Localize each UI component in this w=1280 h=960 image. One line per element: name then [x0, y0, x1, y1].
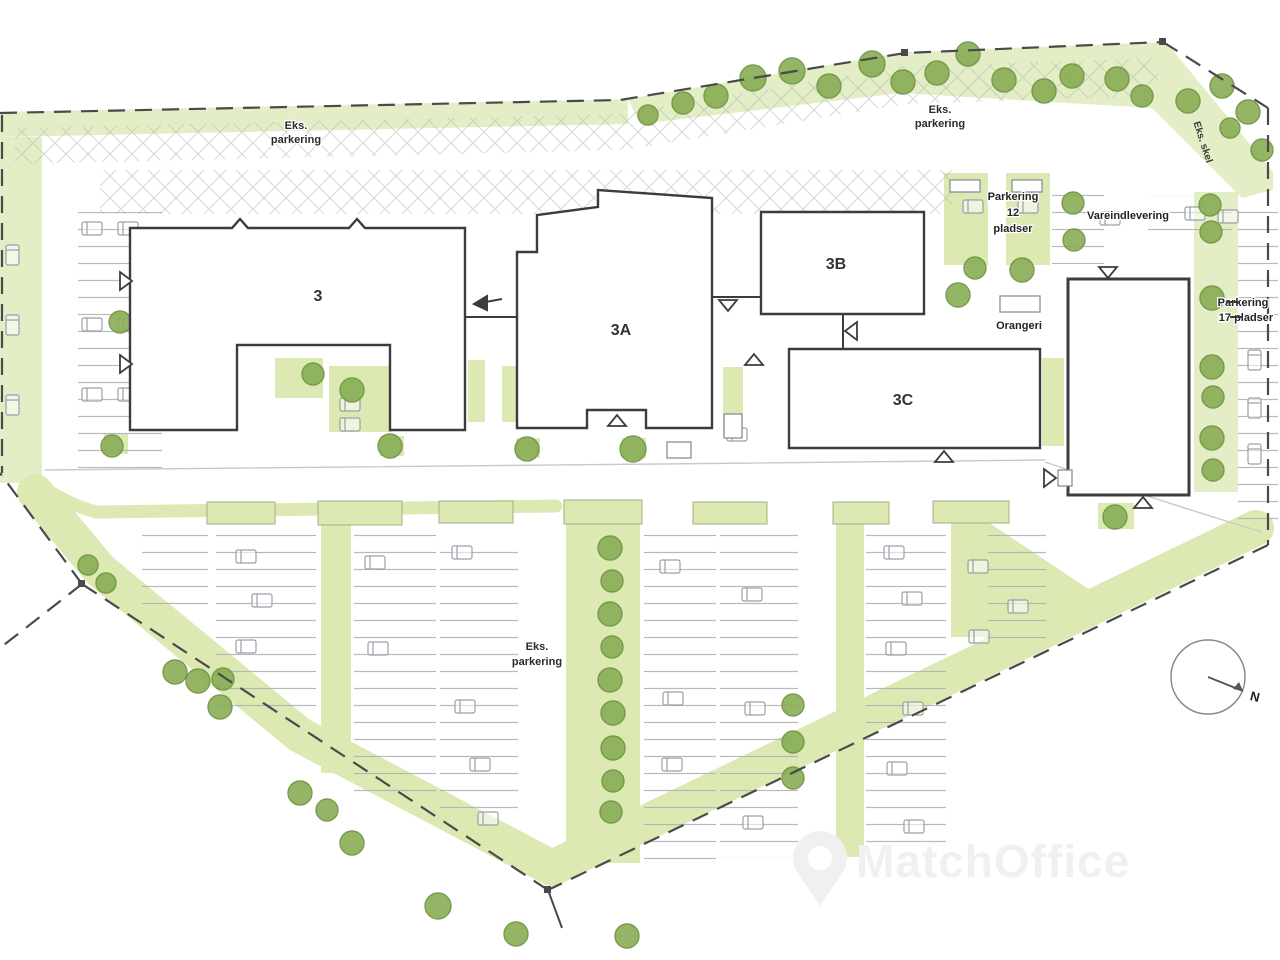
site-plan-drawing: Eks. parkering Eks. parkering Eks. parke…: [0, 0, 1280, 960]
compass: N: [1171, 640, 1261, 714]
orangeri-label: Orangeri: [996, 320, 1042, 332]
eks-parkering-nw-line2: parkering: [271, 134, 321, 146]
parkering-12-line2: 12: [1007, 207, 1019, 219]
matchoffice-watermark-text: MatchOffice: [856, 835, 1130, 887]
eks-parkering-s-line1: Eks.: [526, 641, 549, 653]
building-3c-outline: [789, 349, 1040, 448]
building-3a-outline: [517, 190, 712, 428]
orangeri-structure: [1000, 296, 1040, 312]
parkering-17-line2: 17 pladser: [1219, 312, 1274, 324]
parkering-12-line1: Parkering: [988, 191, 1039, 203]
parkering-12-line3: pladser: [993, 223, 1033, 235]
building-3-label: 3: [314, 288, 323, 305]
eks-parkering-s-line2: parkering: [512, 656, 562, 668]
site-plan: Eks. parkering Eks. parkering Eks. parke…: [0, 0, 1280, 960]
building-3a-label: 3A: [611, 322, 632, 339]
vareindlevering-label: Vareindlevering: [1087, 210, 1169, 222]
eks-parkering-ne-line2: parkering: [915, 118, 965, 130]
building-right-outline: [1068, 279, 1189, 495]
building-3-outline: [130, 219, 465, 430]
building-3c-label: 3C: [893, 392, 914, 409]
building-3b-label: 3B: [826, 256, 846, 273]
compass-n-label: N: [1249, 688, 1262, 705]
eks-parkering-nw-line1: Eks.: [285, 120, 308, 132]
parkering-17-line1: Parkering: [1218, 297, 1269, 309]
eks-parkering-ne-line1: Eks.: [929, 104, 952, 116]
